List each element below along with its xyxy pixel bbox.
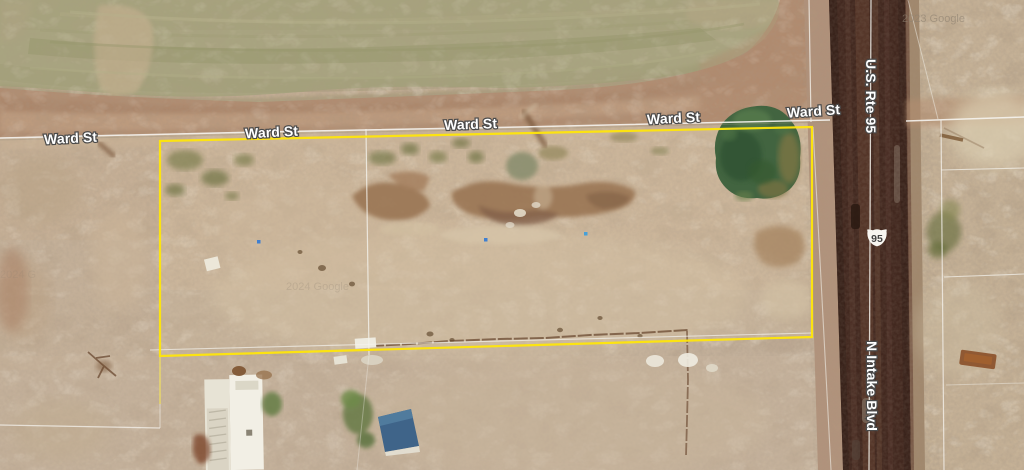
svg-text:N Intake Blvd: N Intake Blvd bbox=[864, 341, 880, 431]
svg-text:Ward St: Ward St bbox=[647, 109, 701, 128]
svg-text:2024 Google: 2024 Google bbox=[286, 281, 349, 293]
svg-text:Ward St: Ward St bbox=[245, 123, 299, 142]
svg-text:2023 Google: 2023 Google bbox=[902, 13, 965, 25]
svg-text:Ward St: Ward St bbox=[444, 115, 498, 133]
svg-text:2024 G: 2024 G bbox=[0, 269, 36, 281]
svg-text:U.S. Rte 95: U.S. Rte 95 bbox=[863, 59, 879, 133]
svg-text:Ward St: Ward St bbox=[44, 129, 98, 148]
svg-text:95: 95 bbox=[871, 233, 883, 245]
